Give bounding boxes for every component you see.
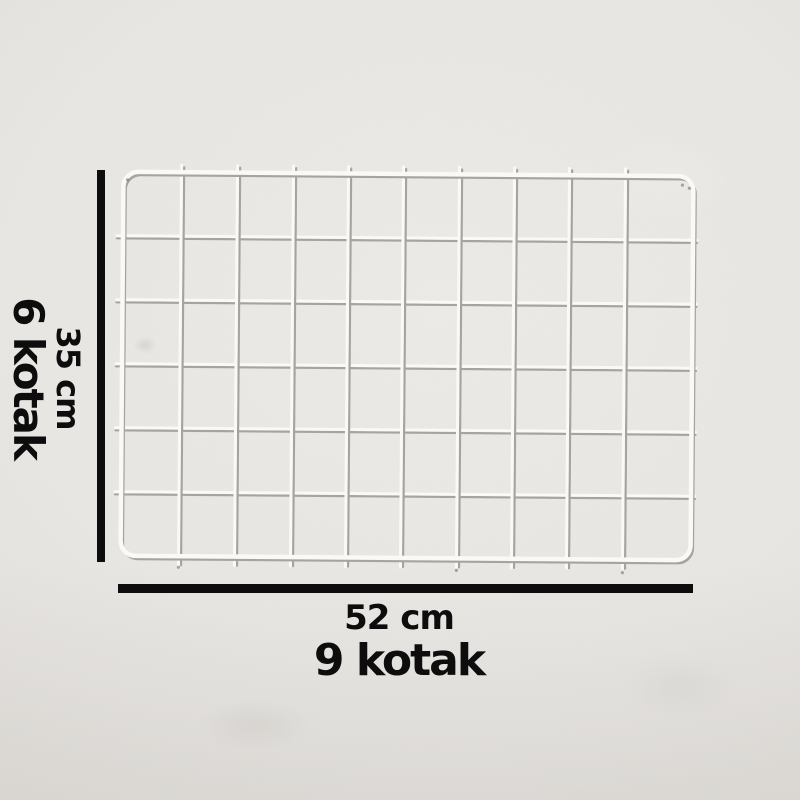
width-dimension-line xyxy=(118,584,693,593)
width-value-label: 52 cm xyxy=(314,600,484,637)
height-dimension-label: 35 cm 6 kotak xyxy=(6,297,86,459)
product-photo-background: 35 cm 6 kotak 52 cm 9 kotak xyxy=(0,0,800,800)
height-dimension-line xyxy=(97,170,105,562)
height-value-label: 35 cm xyxy=(50,297,86,459)
height-count-label: 6 kotak xyxy=(6,297,50,459)
width-count-label: 9 kotak xyxy=(314,637,484,684)
width-dimension-label: 52 cm 9 kotak xyxy=(314,600,484,684)
